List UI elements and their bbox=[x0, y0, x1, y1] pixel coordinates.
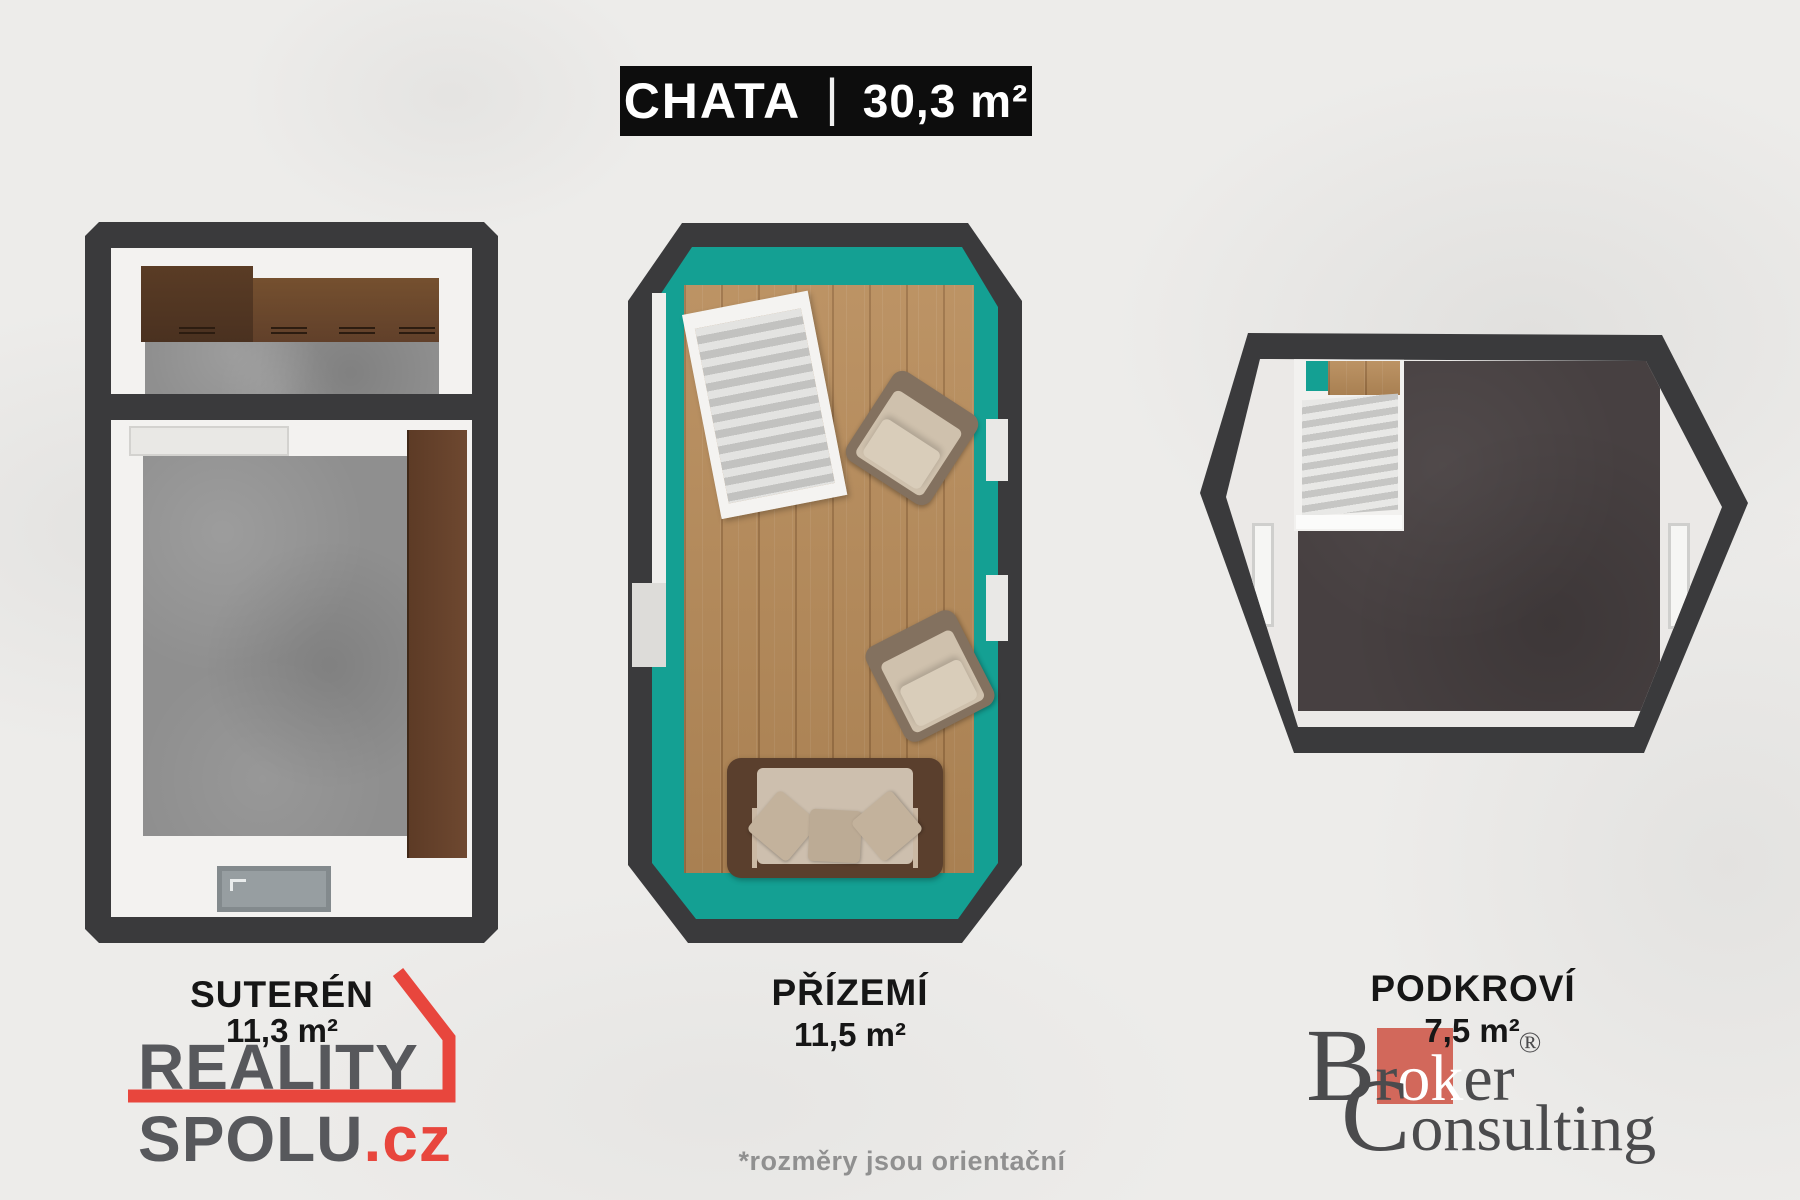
entrance-door bbox=[632, 583, 666, 667]
cabinet-drawer-vent bbox=[399, 327, 435, 336]
consulting-wordmark: Consulting bbox=[1341, 1064, 1656, 1168]
cabinet-drawer-vent bbox=[339, 327, 375, 336]
window-right-upper bbox=[986, 419, 1008, 481]
suteren-interior bbox=[111, 248, 472, 917]
stair-side-wall bbox=[652, 293, 666, 613]
roof-window-left bbox=[1252, 523, 1274, 627]
title-banner: CHATA | 30,3 m² bbox=[620, 66, 1032, 136]
stairwell-teal-wall bbox=[1306, 361, 1328, 391]
attic-stairwell bbox=[1294, 359, 1404, 531]
property-type-title: CHATA bbox=[624, 72, 802, 130]
podkrovi-label: PODKROVÍ bbox=[1370, 968, 1575, 1010]
floorplan-prizemi bbox=[628, 223, 1022, 943]
consulting-text: onsulting bbox=[1410, 1092, 1656, 1165]
doormat bbox=[217, 866, 331, 912]
consulting-cap: C bbox=[1341, 1058, 1410, 1173]
stairwell-rail bbox=[1296, 515, 1402, 529]
storage-cabinet-left bbox=[141, 266, 253, 342]
spolu-text: SPOLU bbox=[138, 1103, 363, 1175]
window-right-lower bbox=[986, 575, 1008, 641]
doormat-mark bbox=[230, 879, 246, 891]
storage-room-floor bbox=[145, 342, 439, 398]
sofa-pillow bbox=[808, 809, 863, 864]
banner-separator: | bbox=[825, 68, 839, 128]
podkrovi-interior bbox=[1226, 359, 1722, 727]
prizemi-area: 11,5 m² bbox=[794, 1016, 906, 1054]
prizemi-label: PŘÍZEMÍ bbox=[771, 972, 928, 1014]
stairwell-wood-glimpse bbox=[1328, 361, 1400, 395]
floorplan-podkrovi bbox=[1200, 333, 1748, 753]
basement-room-floor bbox=[143, 456, 409, 836]
roof-window-right bbox=[1668, 523, 1690, 629]
cz-suffix: .cz bbox=[363, 1103, 451, 1175]
cabinet-drawer-vent bbox=[179, 327, 215, 336]
suteren-label: SUTERÉN bbox=[190, 974, 374, 1016]
sofa bbox=[727, 758, 943, 878]
registered-trademark-icon: ® bbox=[1519, 1026, 1542, 1059]
storage-cabinet-right bbox=[253, 278, 439, 342]
stairwell-treads bbox=[1302, 394, 1398, 517]
suteren-area: 11,3 m² bbox=[226, 1012, 338, 1050]
floorplan-suteren bbox=[85, 222, 498, 943]
total-area-value: 30,3 m² bbox=[863, 74, 1029, 128]
spolu-wordmark: SPOLU.cz bbox=[138, 1102, 452, 1176]
basement-wardrobe bbox=[407, 430, 467, 858]
interior-wall-divider bbox=[111, 394, 472, 420]
dimensions-disclaimer: *rozměry jsou orientační bbox=[738, 1146, 1065, 1177]
basement-counter bbox=[129, 426, 289, 456]
podkrovi-area: 7,5 m² bbox=[1424, 1012, 1519, 1050]
cabinet-drawer-vent bbox=[271, 327, 307, 336]
